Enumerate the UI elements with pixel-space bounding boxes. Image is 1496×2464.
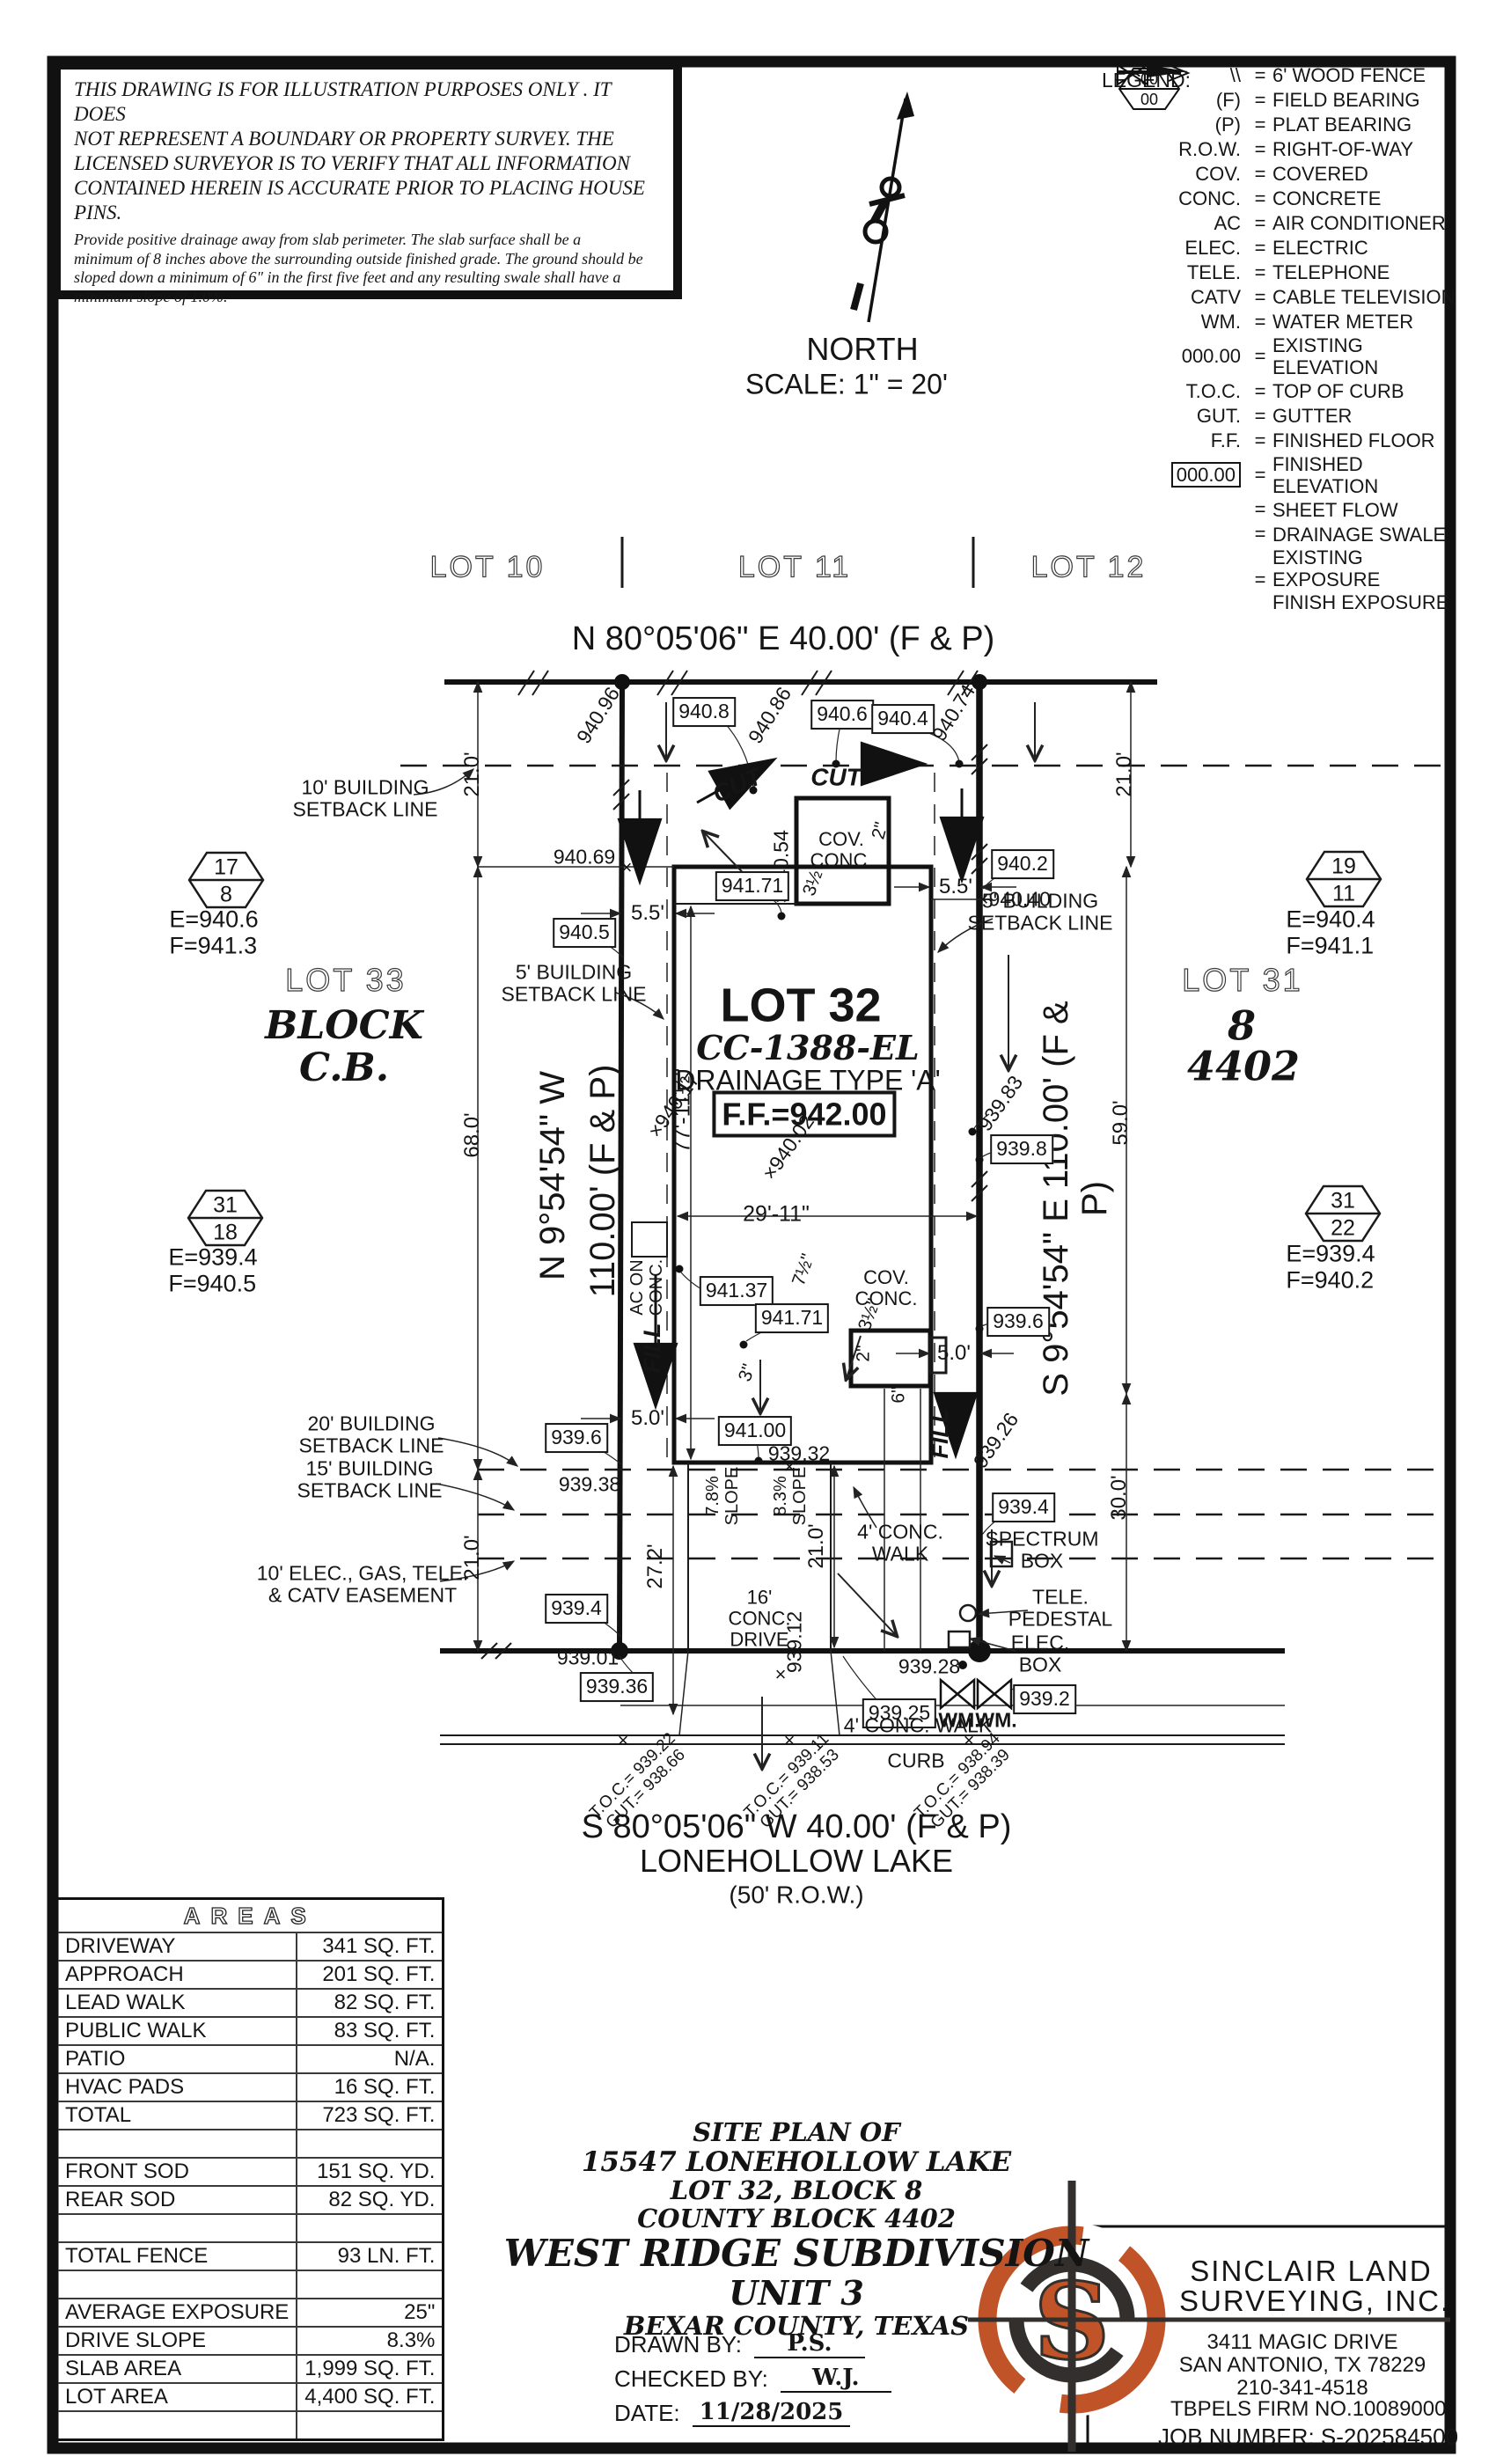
legend-row: =DRAINAGE SWALE: [1116, 522, 1468, 546]
legend-row: =SHEET FLOW: [1116, 497, 1468, 522]
legend-description: CABLE TELEVISION: [1272, 286, 1455, 308]
plan-label: 21.0': [1113, 752, 1136, 796]
svg-text:00: 00: [1140, 70, 1158, 88]
plan-label: ×: [618, 1730, 629, 1751]
areas-row-value: 4,400 SQ. FT.: [297, 2383, 444, 2411]
legend-equals: =: [1248, 498, 1272, 521]
plan-label: 940.8: [672, 697, 736, 727]
legend-equals: =: [1248, 464, 1272, 487]
plan-label: CURB: [887, 1749, 944, 1771]
legend-row: ELEC.=ELECTRIC: [1116, 236, 1468, 260]
areas-row: AVERAGE EXPOSURE25": [57, 2299, 444, 2327]
plan-label: 110.00' (F & P): [583, 1065, 622, 1298]
legend-symbol: WM.: [1116, 311, 1248, 334]
legend-description: PLAT BEARING: [1272, 114, 1412, 136]
plan-label: ×: [784, 1456, 796, 1478]
byline-block: DRAWN BY:P.S. CHECKED BY:W.J. DATE:11/28…: [614, 2330, 891, 2433]
legend-symbol: F.F.: [1116, 429, 1248, 452]
plan-label: ×: [775, 1664, 787, 1685]
plan-label: 5.5': [939, 876, 972, 898]
legend-row: 000.00=FINISHED ELEVATION: [1116, 453, 1468, 498]
plan-label: 8: [1228, 1004, 1256, 1049]
legend-equals: =: [1248, 523, 1272, 546]
legend-description: RIGHT-OF-WAY: [1272, 138, 1413, 160]
plan-label: LOT 10: [430, 551, 546, 583]
legend-description: GUTTER: [1272, 405, 1352, 427]
legend-row: R.O.W.=RIGHT-OF-WAY: [1116, 137, 1468, 162]
areas-row-label: REAR SOD: [57, 2186, 297, 2214]
disclaimer-block: THIS DRAWING IS FOR ILLUSTRATION PURPOSE…: [74, 77, 664, 307]
areas-row-value: [297, 2214, 444, 2242]
areas-row-label: HVAC PADS: [57, 2073, 297, 2101]
plan-label: 4' CONC. WALK: [857, 1522, 943, 1566]
svg-text:00: 00: [1140, 91, 1158, 108]
areas-row-label: [57, 2411, 297, 2440]
firm-name-line2: SURVEYING, INC.: [1179, 2284, 1443, 2318]
areas-row: LOT AREA4,400 SQ. FT.: [57, 2383, 444, 2411]
plan-label: 10' ELEC., GAS, TELE. & CATV EASEMENT: [257, 1563, 468, 1608]
legend-equals: =: [1248, 261, 1272, 284]
areas-row-label: TOTAL: [57, 2101, 297, 2130]
areas-row-value: 341 SQ. FT.: [297, 1932, 444, 1961]
plan-label: BLOCK: [265, 1005, 423, 1047]
plan-label: FILL: [928, 1409, 954, 1459]
plan-label: 941.71: [755, 1303, 829, 1333]
legend-description: DRAINAGE SWALE: [1272, 524, 1446, 546]
plan-label: 8: [220, 883, 232, 907]
legend-row: T.O.C.=TOP OF CURB: [1116, 379, 1468, 404]
legend-symbol: R.O.W.: [1116, 138, 1248, 161]
plan-label: 939.4: [992, 1492, 1055, 1522]
legend-equals: =: [1248, 568, 1272, 591]
plan-label: 2": [853, 1345, 873, 1361]
checked-by-value: W.J.: [781, 2365, 891, 2393]
plan-label: 29'-11": [743, 1202, 810, 1227]
plan-label: 10' BUILDING SETBACK LINE: [293, 777, 438, 822]
plan-label: LONEHOLLOW LAKE: [640, 1844, 953, 1879]
water-meter-icon: [941, 1680, 1011, 1708]
plan-label: 20' BUILDING SETBACK LINE: [299, 1413, 444, 1458]
plan-label: 939.6: [986, 1307, 1050, 1337]
plan-label: 22: [1331, 1216, 1355, 1241]
legend-row: WM. =WATER METER: [1116, 310, 1468, 334]
areas-row-value: 201 SQ. FT.: [297, 1961, 444, 1989]
plan-label: LOT 12: [1031, 551, 1147, 583]
plan-label: 940.5: [553, 918, 616, 948]
title-unit: UNIT 3: [488, 2274, 1104, 2313]
plan-label: 68.0': [461, 1112, 484, 1157]
legend-symbol: AC: [1116, 212, 1248, 235]
plan-label: 21.0': [805, 1523, 828, 1568]
areas-row-label: APPROACH: [57, 1961, 297, 1989]
plan-label: FILL: [640, 1324, 666, 1374]
legend-description: 6' WOOD FENCE: [1272, 64, 1426, 86]
areas-row-value: [297, 2130, 444, 2158]
legend-equals: =: [1248, 89, 1272, 112]
areas-row: HVAC PADS16 SQ. FT.: [57, 2073, 444, 2101]
legend-equals: =: [1248, 311, 1272, 334]
areas-row-label: [57, 2214, 297, 2242]
plan-label: 939.36: [580, 1672, 654, 1702]
plan-label: 940.6: [810, 700, 874, 730]
legend-row: (P)=PLAT BEARING: [1116, 113, 1468, 137]
legend-rows: \\=6' WOOD FENCE(F)=FIELD BEARING(P)=PLA…: [1116, 63, 1468, 613]
firm-address-line2: SAN ANTONIO, TX 78229: [1170, 2353, 1434, 2378]
plan-label: LOT 11: [738, 551, 851, 583]
legend-description: AIR CONDITIONER: [1272, 212, 1446, 234]
legend-symbol: COV.: [1116, 163, 1248, 186]
legend-symbol: TELE.: [1116, 261, 1248, 284]
plan-label: 939.28: [898, 1655, 960, 1677]
legend-row: 000.00=EXISTING ELEVATION: [1116, 334, 1468, 379]
plan-label: 941.71: [715, 871, 789, 901]
areas-row: TOTAL FENCE93 LN. FT.: [57, 2242, 444, 2270]
areas-row: [57, 2214, 444, 2242]
legend-row: GUT.=GUTTER: [1116, 404, 1468, 429]
plan-label: CUT: [810, 765, 862, 792]
areas-row-value: N/A.: [297, 2045, 444, 2073]
plan-label: N 9°54'54" W: [533, 1071, 572, 1280]
legend-row: F.F.=FINISHED FLOOR: [1116, 429, 1468, 453]
areas-row: REAR SOD82 SQ. YD.: [57, 2186, 444, 2214]
plan-label: ×: [964, 1730, 975, 1751]
plan-label: 939.2: [1013, 1684, 1076, 1714]
legend-symbol: GUT.: [1116, 405, 1248, 428]
legend-description: CONCRETE: [1272, 187, 1381, 209]
legend-equals: =: [1248, 237, 1272, 260]
areas-row-value: 8.3%: [297, 2327, 444, 2355]
areas-row: PATION/A.: [57, 2045, 444, 2073]
areas-row-value: 83 SQ. FT.: [297, 2017, 444, 2045]
legend-equals: =: [1248, 380, 1272, 403]
areas-title: AREAS: [57, 1899, 444, 1933]
plan-label: 940.2: [991, 849, 1054, 879]
plan-label: 21.0': [461, 752, 484, 796]
title-site-plan-of: SITE PLAN OF: [488, 2119, 1104, 2147]
exposure-hexagon-icon: 0000: [1116, 63, 1183, 114]
legend-description: EXISTING ELEVATION: [1272, 334, 1468, 379]
areas-row-value: 93 LN. FT.: [297, 2242, 444, 2270]
plan-label: 939.38: [559, 1473, 620, 1495]
plan-label: ×: [784, 1730, 796, 1751]
plan-label: SCALE: 1" = 20': [745, 369, 948, 400]
plan-label: 5.5': [631, 902, 664, 925]
areas-row: FRONT SOD151 SQ. YD.: [57, 2158, 444, 2186]
areas-row: [57, 2130, 444, 2158]
plan-label: E=940.4 F=941.1: [1286, 906, 1375, 958]
areas-row: DRIVEWAY341 SQ. FT.: [57, 1932, 444, 1961]
plan-label: 4402: [1187, 1045, 1300, 1089]
areas-row: DRIVE SLOPE8.3%: [57, 2327, 444, 2355]
date-value: 11/28/2025: [693, 2399, 851, 2427]
plan-label: 5' BUILDING SETBACK LINE: [502, 962, 647, 1007]
legend-equals: =: [1248, 345, 1272, 368]
plan-label: LOT 33: [285, 963, 406, 998]
legend-row: AC=AIR CONDITIONER: [1116, 211, 1468, 236]
plan-label: SPECTRUM BOX: [985, 1529, 1098, 1573]
areas-row-label: DRIVEWAY: [57, 1932, 297, 1961]
plan-label: 19: [1331, 854, 1356, 879]
areas-row-label: TOTAL FENCE: [57, 2242, 297, 2270]
plan-label: 18: [213, 1221, 238, 1245]
plan-label: 939.6: [545, 1423, 608, 1453]
plan-label: 17: [214, 855, 238, 880]
areas-row-label: [57, 2130, 297, 2158]
areas-row-value: [297, 2270, 444, 2299]
title-block: SITE PLAN OF 15547 LONEHOLLOW LAKE LOT 3…: [488, 2119, 1104, 2341]
firm-address-line1: 3411 MAGIC DRIVE: [1170, 2330, 1434, 2355]
plan-label: 939.01: [557, 1646, 619, 1668]
legend-symbol: T.O.C.: [1116, 380, 1248, 403]
date-label: DATE:: [614, 2400, 680, 2427]
plan-label: 941.37: [700, 1276, 774, 1306]
plan-label: 31: [1331, 1189, 1355, 1214]
areas-row-value: 25": [297, 2299, 444, 2327]
areas-row-value: 82 SQ. YD.: [297, 2186, 444, 2214]
legend-row: CONC.=CONCRETE: [1116, 187, 1468, 211]
legend-description: FINISHED FLOOR: [1272, 429, 1435, 451]
plan-label: 939.4: [545, 1594, 608, 1624]
legend-row: COV.=COVERED: [1116, 162, 1468, 187]
areas-row: PUBLIC WALK83 SQ. FT.: [57, 2017, 444, 2045]
areas-row-label: PATIO: [57, 2045, 297, 2073]
plan-label: 939.12: [783, 1611, 805, 1673]
plan-label: 31: [213, 1193, 238, 1218]
legend-equals: =: [1248, 212, 1272, 235]
firm-job-number: JOB NUMBER: S-202584500: [1158, 2424, 1448, 2451]
legend-description: TELEPHONE: [1272, 261, 1390, 283]
areas-row-label: AVERAGE EXPOSURE: [57, 2299, 297, 2327]
plan-label: AC ON CONC.: [627, 1259, 666, 1316]
areas-row-value: 16 SQ. FT.: [297, 2073, 444, 2101]
areas-row-value: 151 SQ. YD.: [297, 2158, 444, 2186]
drawn-by-value: P.S.: [754, 2330, 865, 2358]
plan-label: 939.32: [768, 1442, 830, 1464]
title-address: 15547 LONEHOLLOW LAKE: [488, 2147, 1104, 2177]
plan-label: ×940.40: [977, 888, 1051, 910]
plan-label: ELEC. BOX: [1011, 1632, 1069, 1677]
plan-label: 59.0': [1110, 1100, 1133, 1145]
legend-equals: =: [1248, 187, 1272, 210]
legend-description: FIELD BEARING: [1272, 89, 1419, 111]
plan-label: S 9°54'54" E 110.00' (F & P): [1037, 988, 1114, 1409]
areas-row-value: [297, 2411, 444, 2440]
areas-row-value: 1,999 SQ. FT.: [297, 2355, 444, 2383]
legend-equals: =: [1248, 429, 1272, 452]
drawn-by-label: DRAWN BY:: [614, 2331, 742, 2358]
legend-equals: =: [1248, 163, 1272, 186]
areas-row-label: SLAB AREA: [57, 2355, 297, 2383]
disclaimer-note: Provide positive drainage away from slab…: [74, 231, 664, 306]
plan-label: CC-1388-EL: [696, 1030, 919, 1067]
plan-label: ×: [621, 857, 633, 878]
legend-row: TELE.=TELEPHONE: [1116, 260, 1468, 285]
areas-rows: DRIVEWAY341 SQ. FT.APPROACH201 SQ. FT.LE…: [57, 1932, 444, 2440]
plan-label: 30.0': [1108, 1475, 1131, 1520]
firm-name-line1: SINCLAIR LAND: [1179, 2255, 1443, 2288]
legend-description: WATER METER: [1272, 311, 1413, 333]
legend-equals: =: [1248, 405, 1272, 428]
areas-table: AREAS DRIVEWAY341 SQ. FT.APPROACH201 SQ.…: [55, 1897, 444, 2441]
title-lot-block: LOT 32, BLOCK 8: [488, 2177, 1104, 2205]
plan-label: 16' CONC. DRIVE: [729, 1588, 791, 1652]
areas-row-label: FRONT SOD: [57, 2158, 297, 2186]
plan-label: 7.8% SLOPE: [703, 1467, 742, 1526]
legend-symbol: ELEC.: [1116, 237, 1248, 260]
areas-row-label: LEAD WALK: [57, 1989, 297, 2017]
plan-label: 11: [1332, 882, 1355, 906]
areas-row: [57, 2411, 444, 2440]
legend-equals: =: [1248, 138, 1272, 161]
legend-row: 0000=EXISTING EXPOSURE FINISH EXPOSURE: [1116, 546, 1468, 613]
legend-equals: =: [1248, 64, 1272, 87]
plan-label: 21.0': [461, 1535, 484, 1580]
legend-symbol: CONC.: [1116, 187, 1248, 210]
plan-label: 940.69: [554, 846, 615, 868]
plan-label: LOT 32: [720, 979, 881, 1031]
areas-row: LEAD WALK82 SQ. FT.: [57, 1989, 444, 2017]
plan-label: 5.0': [631, 1407, 664, 1430]
plan-label: 5.0': [937, 1342, 971, 1365]
plan-label: E=939.4 F=940.5: [168, 1244, 257, 1296]
plan-label: LOT 31: [1182, 963, 1302, 998]
areas-row-label: LOT AREA: [57, 2383, 297, 2411]
plan-label: C.B.: [299, 1047, 389, 1089]
plan-label: 939.8: [990, 1134, 1053, 1164]
legend-equals: =: [1248, 114, 1272, 136]
legend-symbol: CATV: [1116, 286, 1248, 309]
legend-symbol: 000.00: [1116, 464, 1248, 487]
legend-description: ELECTRIC: [1272, 237, 1368, 259]
legend-description: SHEET FLOW: [1272, 499, 1398, 521]
areas-row: SLAB AREA1,999 SQ. FT.: [57, 2355, 444, 2383]
plan-label: E=940.6 F=941.3: [169, 906, 258, 958]
legend-description: COVERED: [1272, 163, 1368, 185]
plan-label: (50' R.O.W.): [729, 1882, 863, 1910]
legend-description: EXISTING EXPOSURE FINISH EXPOSURE: [1272, 546, 1468, 613]
areas-row: APPROACH201 SQ. FT.: [57, 1961, 444, 1989]
site-plan-sheet: S THIS DRAWING IS FOR ILLUSTRATION PURPO…: [0, 0, 1496, 2464]
legend-equals: =: [1248, 286, 1272, 309]
areas-row-label: PUBLIC WALK: [57, 2017, 297, 2045]
plan-label: TELE. PEDESTAL: [1008, 1587, 1112, 1632]
plan-label: 27.2': [644, 1544, 667, 1588]
legend-description: FINISHED ELEVATION: [1272, 453, 1468, 498]
legend-description: TOP OF CURB: [1272, 380, 1404, 402]
title-subdivision: WEST RIDGE SUBDIVISION: [488, 2233, 1104, 2274]
plan-label: 6": [888, 1386, 908, 1403]
areas-row-value: 82 SQ. FT.: [297, 1989, 444, 2017]
plan-label: NORTH: [806, 332, 918, 367]
plan-label: N 80°05'06" E 40.00' (F & P): [572, 621, 994, 658]
areas-row: TOTAL723 SQ. FT.: [57, 2101, 444, 2130]
areas-row-value: 723 SQ. FT.: [297, 2101, 444, 2130]
firm-registration: TBPELS FIRM NO.10089000: [1170, 2397, 1434, 2422]
legend-symbol: 000.00: [1116, 345, 1248, 368]
plan-label: 940.4: [871, 704, 935, 734]
disclaimer-warning: THIS DRAWING IS FOR ILLUSTRATION PURPOSE…: [74, 77, 664, 225]
legend-row: CATV=CABLE TELEVISION: [1116, 285, 1468, 310]
legend-symbol: (P): [1116, 114, 1248, 136]
plan-label: E=939.4 F=940.2: [1286, 1241, 1375, 1293]
title-county-block: COUNTY BLOCK 4402: [488, 2205, 1104, 2233]
areas-row-label: [57, 2270, 297, 2299]
north-arrow-icon: [854, 92, 914, 322]
plan-label: 15' BUILDING SETBACK LINE: [297, 1458, 443, 1503]
checked-by-label: CHECKED BY:: [614, 2365, 768, 2393]
areas-row-label: DRIVE SLOPE: [57, 2327, 297, 2355]
areas-row: [57, 2270, 444, 2299]
